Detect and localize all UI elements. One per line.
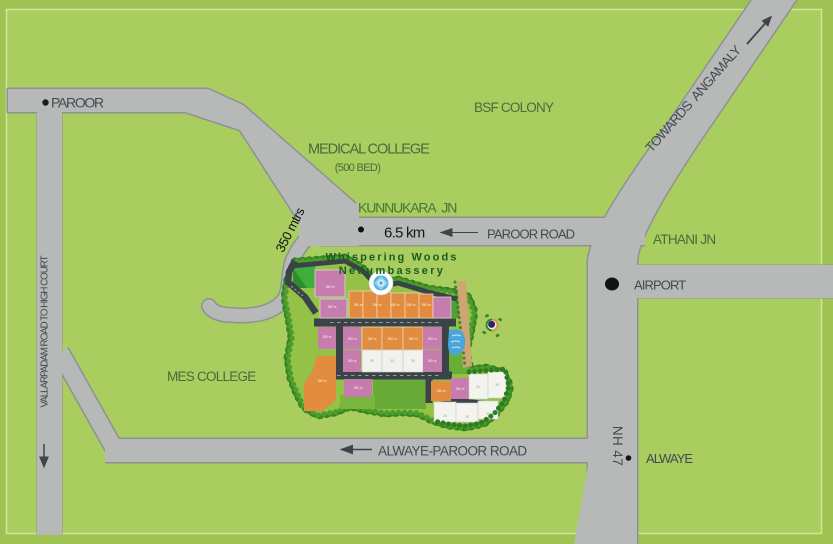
svg-text:35: 35 — [390, 359, 394, 363]
svg-text:350 m: 350 m — [388, 337, 397, 341]
svg-text:350 m: 350 m — [428, 359, 437, 363]
svg-text:350 m: 350 m — [354, 386, 363, 390]
svg-text:35: 35 — [476, 385, 480, 389]
svg-text:350 m: 350 m — [391, 303, 400, 307]
svg-text:PAROOR ROAD: PAROOR ROAD — [487, 227, 575, 242]
svg-text:350 m: 350 m — [437, 389, 446, 393]
svg-text:35: 35 — [495, 383, 499, 387]
svg-text:350 m: 350 m — [318, 379, 327, 383]
svg-text:Whispering Woods: Whispering Woods — [325, 252, 458, 264]
svg-text:350 m: 350 m — [409, 337, 418, 341]
svg-text:350 m: 350 m — [368, 337, 377, 341]
svg-text:350 m: 350 m — [422, 303, 431, 307]
svg-text:(500 BED): (500 BED) — [335, 162, 381, 174]
svg-text:VALLARPADAM ROAD TO HIGH COURT: VALLARPADAM ROAD TO HIGH COURT — [40, 255, 51, 407]
svg-text:ALWAYE: ALWAYE — [646, 451, 693, 466]
svg-text:350 m: 350 m — [326, 285, 335, 289]
svg-text:AIRPORT: AIRPORT — [634, 278, 686, 293]
svg-text:6.5 km: 6.5 km — [384, 225, 425, 242]
svg-text:MES COLLEGE: MES COLLEGE — [167, 369, 256, 384]
svg-text:NH 47: NH 47 — [610, 426, 625, 466]
svg-text:350 m: 350 m — [323, 335, 332, 339]
svg-text:BSF COLONY: BSF COLONY — [474, 100, 554, 115]
svg-text:PAROOR: PAROOR — [51, 95, 104, 111]
svg-text:35: 35 — [411, 359, 415, 363]
svg-text:35: 35 — [370, 359, 374, 363]
svg-text:KUNNUKARA JN: KUNNUKARA JN — [358, 200, 456, 216]
svg-text:ATHANI JN: ATHANI JN — [653, 232, 715, 247]
svg-text:ALWAYE-PAROOR ROAD: ALWAYE-PAROOR ROAD — [378, 444, 527, 459]
svg-text:Nedumbassery: Nedumbassery — [339, 265, 445, 277]
svg-text:350 m: 350 m — [328, 305, 337, 309]
svg-text:350 m: 350 m — [456, 387, 465, 391]
svg-text:35: 35 — [486, 412, 490, 416]
svg-text:350 m: 350 m — [348, 337, 357, 341]
svg-text:350 m: 350 m — [373, 303, 382, 307]
svg-text:350 m: 350 m — [407, 303, 416, 307]
svg-text:35: 35 — [465, 415, 469, 419]
svg-text:350 m: 350 m — [354, 303, 363, 307]
svg-text:350 m: 350 m — [428, 337, 437, 341]
svg-text:MEDICAL COLLEGE: MEDICAL COLLEGE — [308, 142, 430, 158]
svg-text:35: 35 — [443, 414, 447, 418]
svg-text:350 m: 350 m — [348, 359, 357, 363]
